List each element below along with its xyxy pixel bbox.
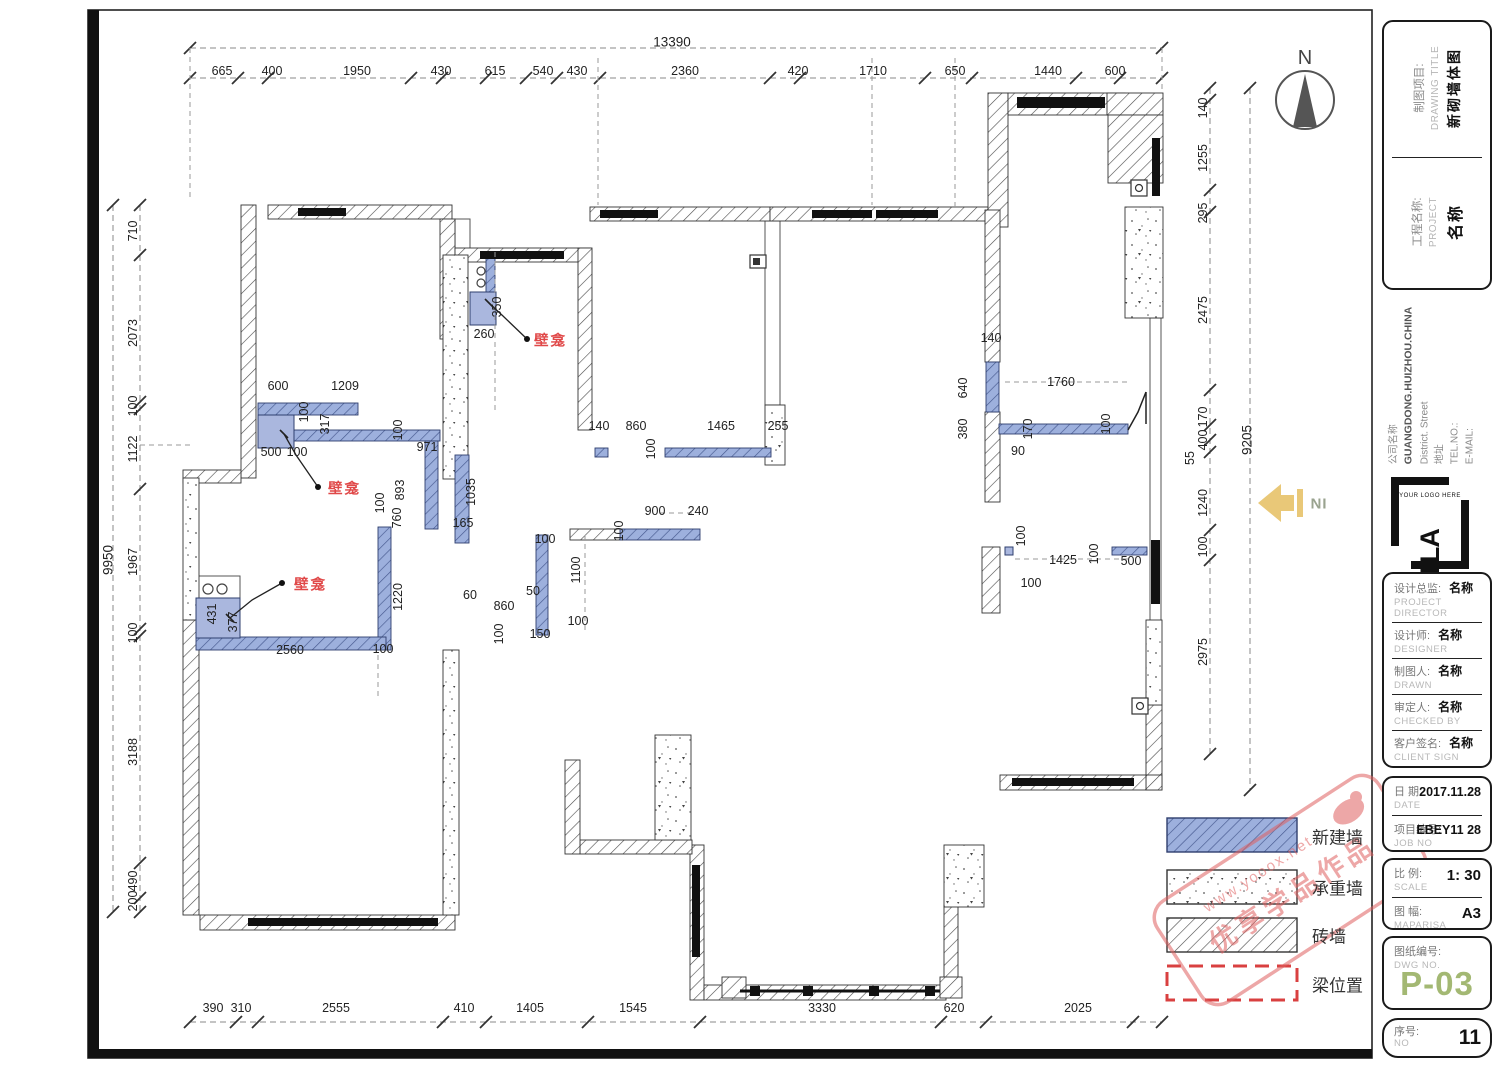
company-info: 公司名称 GUANGDONG.HUIZHOU.CHINA District. S…	[1387, 307, 1478, 465]
drawing-title-en: DRAWING TITLE	[1430, 46, 1441, 130]
legend-label-load-bearing: 承重墙	[1312, 875, 1363, 900]
dwg-box: 图纸编号: DWG NO. P-03	[1382, 936, 1492, 1010]
legend-label-new-wall: 新建墙	[1312, 824, 1363, 849]
project-value: 名称	[1442, 204, 1466, 240]
sheet-number: 11	[1459, 1026, 1481, 1050]
date-value: 2017.11.28	[1419, 785, 1481, 799]
scale-box: 比 例: SCALE 1: 30 图 幅: MAPARISA A3	[1382, 858, 1492, 930]
size-row: 图 幅: MAPARISA A3	[1384, 898, 1490, 935]
drawing-title-section: 制图项目: DRAWING TITLE 新砌墙体图	[1387, 13, 1487, 163]
legend-label-brick: 砖墙	[1312, 923, 1346, 948]
no-row: 序号: NO 11	[1384, 1020, 1490, 1053]
project-section: 工程名称: PROJECT 名称	[1387, 147, 1487, 297]
project-en: PROJECT	[1428, 197, 1439, 247]
legend-label-beam: 梁位置	[1312, 972, 1363, 997]
floor-plan: 优享学品作品 www.yooox.net	[0, 0, 1500, 1071]
project-zh: 工程名称:	[1409, 197, 1425, 246]
date-row: 日 期: DATE 2017.11.28	[1384, 778, 1490, 815]
tla-logo: TLA YOUR LOGO HERE	[1391, 477, 1469, 569]
job-value: EBEY11 28	[1416, 823, 1481, 837]
date-box: 日 期: DATE 2017.11.28 项目编号: JOB NO EBEY11…	[1382, 776, 1492, 852]
size-value: A3	[1462, 905, 1481, 922]
no-box: 序号: NO 11	[1382, 1018, 1492, 1058]
company-section: 公司名称 GUANGDONG.HUIZHOU.CHINA District. S…	[1385, 291, 1480, 481]
personnel-row: 设计师:名称DESIGNER	[1384, 623, 1490, 658]
logo-bracket-icon	[1411, 500, 1469, 569]
personnel-row: 客户签名:名称CLIENT SIGN	[1384, 731, 1490, 766]
personnel-row: 制图人:名称DRAWN	[1384, 659, 1490, 694]
north-label: N	[1298, 48, 1312, 68]
personnel-row: 审定人:名称CHECKED BY	[1384, 695, 1490, 730]
personnel-row: 设计总监:名称PROJECT DIRECTOR	[1384, 576, 1490, 622]
drawing-title-value: 新砌墙体图	[1444, 48, 1464, 128]
north-arrow-icon	[1276, 71, 1334, 129]
personnel-box: 设计总监:名称PROJECT DIRECTOR设计师:名称DESIGNER制图人…	[1382, 572, 1492, 768]
entrance-label: IN	[1310, 495, 1327, 512]
entrance-arrow-icon	[1258, 484, 1303, 522]
drawing-sheet: 优享学品作品 www.yooox.net 1339066540019504306…	[0, 0, 1500, 1071]
dwg-row: 图纸编号: DWG NO.	[1384, 938, 1490, 971]
drawing-title-zh: 制图项目:	[1411, 63, 1427, 112]
scale-row: 比 例: SCALE 1: 30	[1384, 860, 1490, 897]
scale-value: 1: 30	[1447, 867, 1481, 884]
job-row: 项目编号: JOB NO EBEY11 28	[1384, 816, 1490, 853]
logo-subtext: YOUR LOGO HERE	[1399, 493, 1461, 499]
